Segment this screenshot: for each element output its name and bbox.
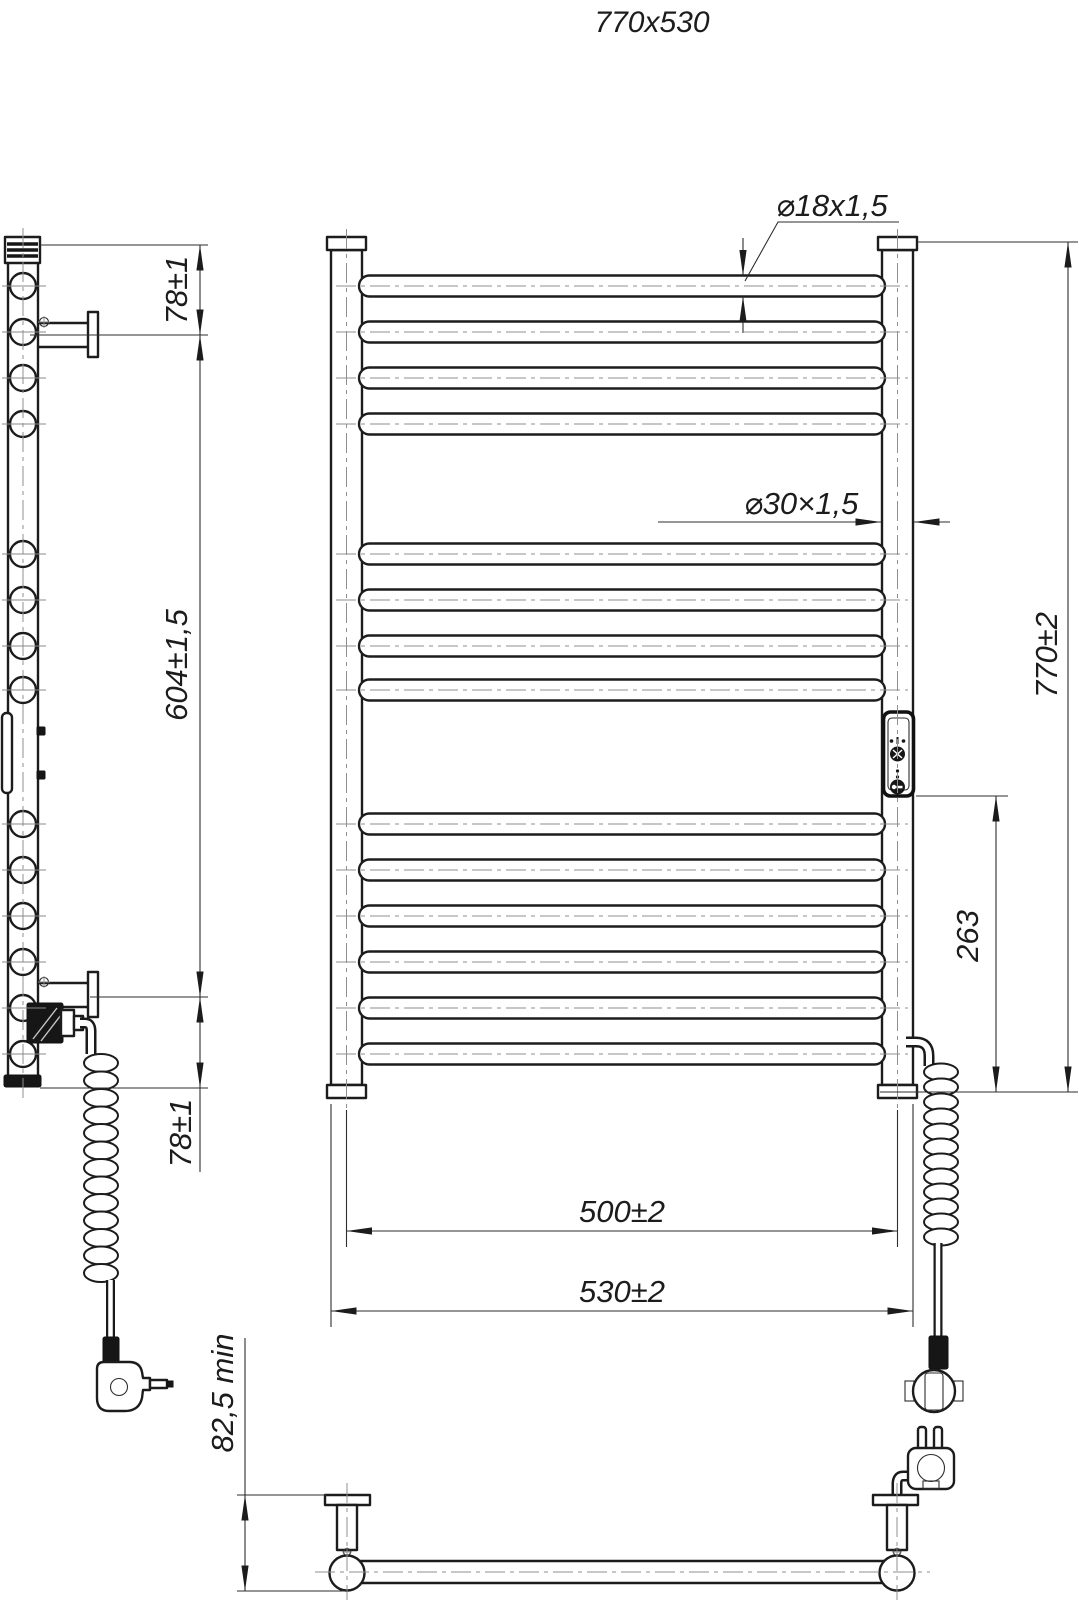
cable-coil-loop [84, 1054, 118, 1072]
dim-tube-diameter: ⌀18x1,5 [743, 188, 899, 333]
control-dot-icon [902, 739, 906, 743]
dim-label: 604±1,5 [159, 608, 194, 721]
power-cable-coiled-right [924, 1064, 958, 1246]
cable-coil-loop [84, 1159, 118, 1177]
cable-coil-loop [84, 1142, 118, 1160]
control-dot-icon [890, 739, 894, 743]
cable-coil-loop [84, 1264, 118, 1282]
cable-sleeve-right [929, 1336, 948, 1369]
front-view [327, 229, 963, 1412]
dim-wall-clearance: 82,5 min [205, 1334, 347, 1591]
dim-label: 82,5 min [205, 1334, 240, 1453]
rung-centerlines [336, 286, 908, 1054]
cable-coil-loop [84, 1124, 118, 1142]
cable-coil-loop [84, 1247, 118, 1265]
dim-bracket-span: 604±1,5 [159, 335, 200, 997]
control-stud-icon [37, 727, 45, 735]
dim-bracket-top-offset: 78±1 [30, 245, 208, 335]
cable-coil-loop [84, 1107, 118, 1125]
dim-label: 770±2 [1029, 612, 1064, 698]
drawing-sheet: 770x530 [0, 0, 1079, 1600]
power-plug-left [97, 1362, 173, 1411]
leader-line [745, 222, 899, 281]
dim-overall-height: 770±2 [880, 242, 1078, 1092]
cable-coil-loop [84, 1072, 118, 1090]
drawing-title: 770x530 [594, 6, 709, 39]
cable-coil-loop [924, 1229, 958, 1246]
plug-pin-icon [918, 1427, 926, 1450]
dim-label: 78±1 [159, 256, 194, 325]
technical-drawing: 770x530 [0, 0, 1079, 1600]
control-stud-icon [37, 771, 45, 779]
heating-element [27, 1003, 91, 1054]
dim-axis-width: 500±2 [347, 1110, 898, 1247]
rungs [359, 276, 885, 1065]
dim-label: 500±2 [579, 1194, 665, 1229]
cable-coil-loop [84, 1229, 118, 1247]
bottom-heater-plug [897, 1427, 954, 1497]
dim-label: 78±1 [163, 1099, 198, 1168]
plug-pin-icon [150, 1380, 167, 1388]
dim-label: 530±2 [579, 1274, 665, 1309]
cable-coil-loop [84, 1212, 118, 1230]
bottom-view [315, 1427, 954, 1600]
power-plug-right [905, 1370, 963, 1412]
dim-label: 263 [950, 910, 985, 963]
dim-post-diameter: ⌀30×1,5 [658, 486, 950, 522]
plug-pin-icon [934, 1427, 942, 1450]
side-view [2, 228, 173, 1411]
bottom-bracket-right [873, 1495, 918, 1557]
dim-label: ⌀18x1,5 [776, 188, 888, 223]
dim-label: ⌀30×1,5 [744, 486, 859, 521]
control-unit [884, 712, 914, 796]
cable-coil-loop [84, 1194, 118, 1212]
cable-coil-loop [84, 1089, 118, 1107]
cable-coil-loop [84, 1177, 118, 1195]
